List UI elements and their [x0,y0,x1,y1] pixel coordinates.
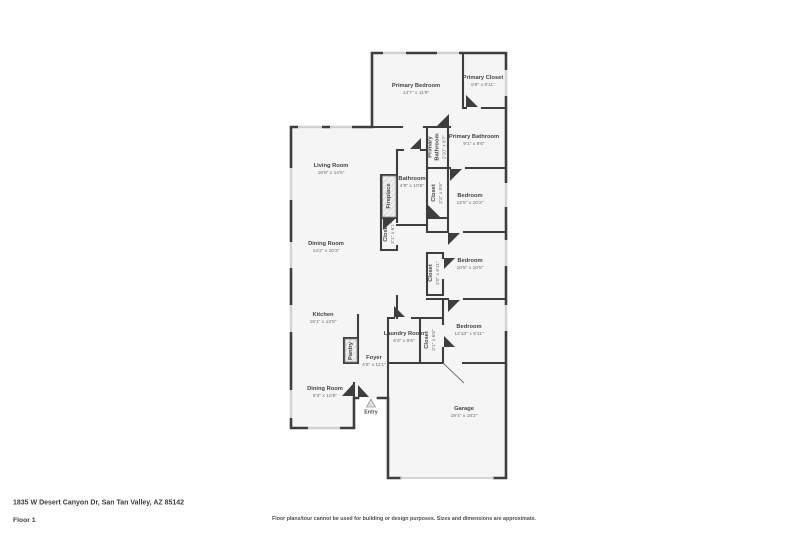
fireplace-box [383,176,397,217]
floorplan-drawing [0,0,800,533]
disclaimer-text: Floor plans/tour cannot be used for buil… [272,516,536,522]
property-address: 1835 W Desert Canyon Dr, San Tan Valley,… [13,498,184,506]
entry-marker-icon [367,399,376,407]
floorplan-page: Primary Bedroom14'7" x 11'9"Primary Clos… [0,0,800,533]
entry-label: Entry [364,409,377,415]
floor-area [291,53,506,478]
floor-label: Floor 1 [13,516,36,524]
pantry-box [345,339,357,362]
